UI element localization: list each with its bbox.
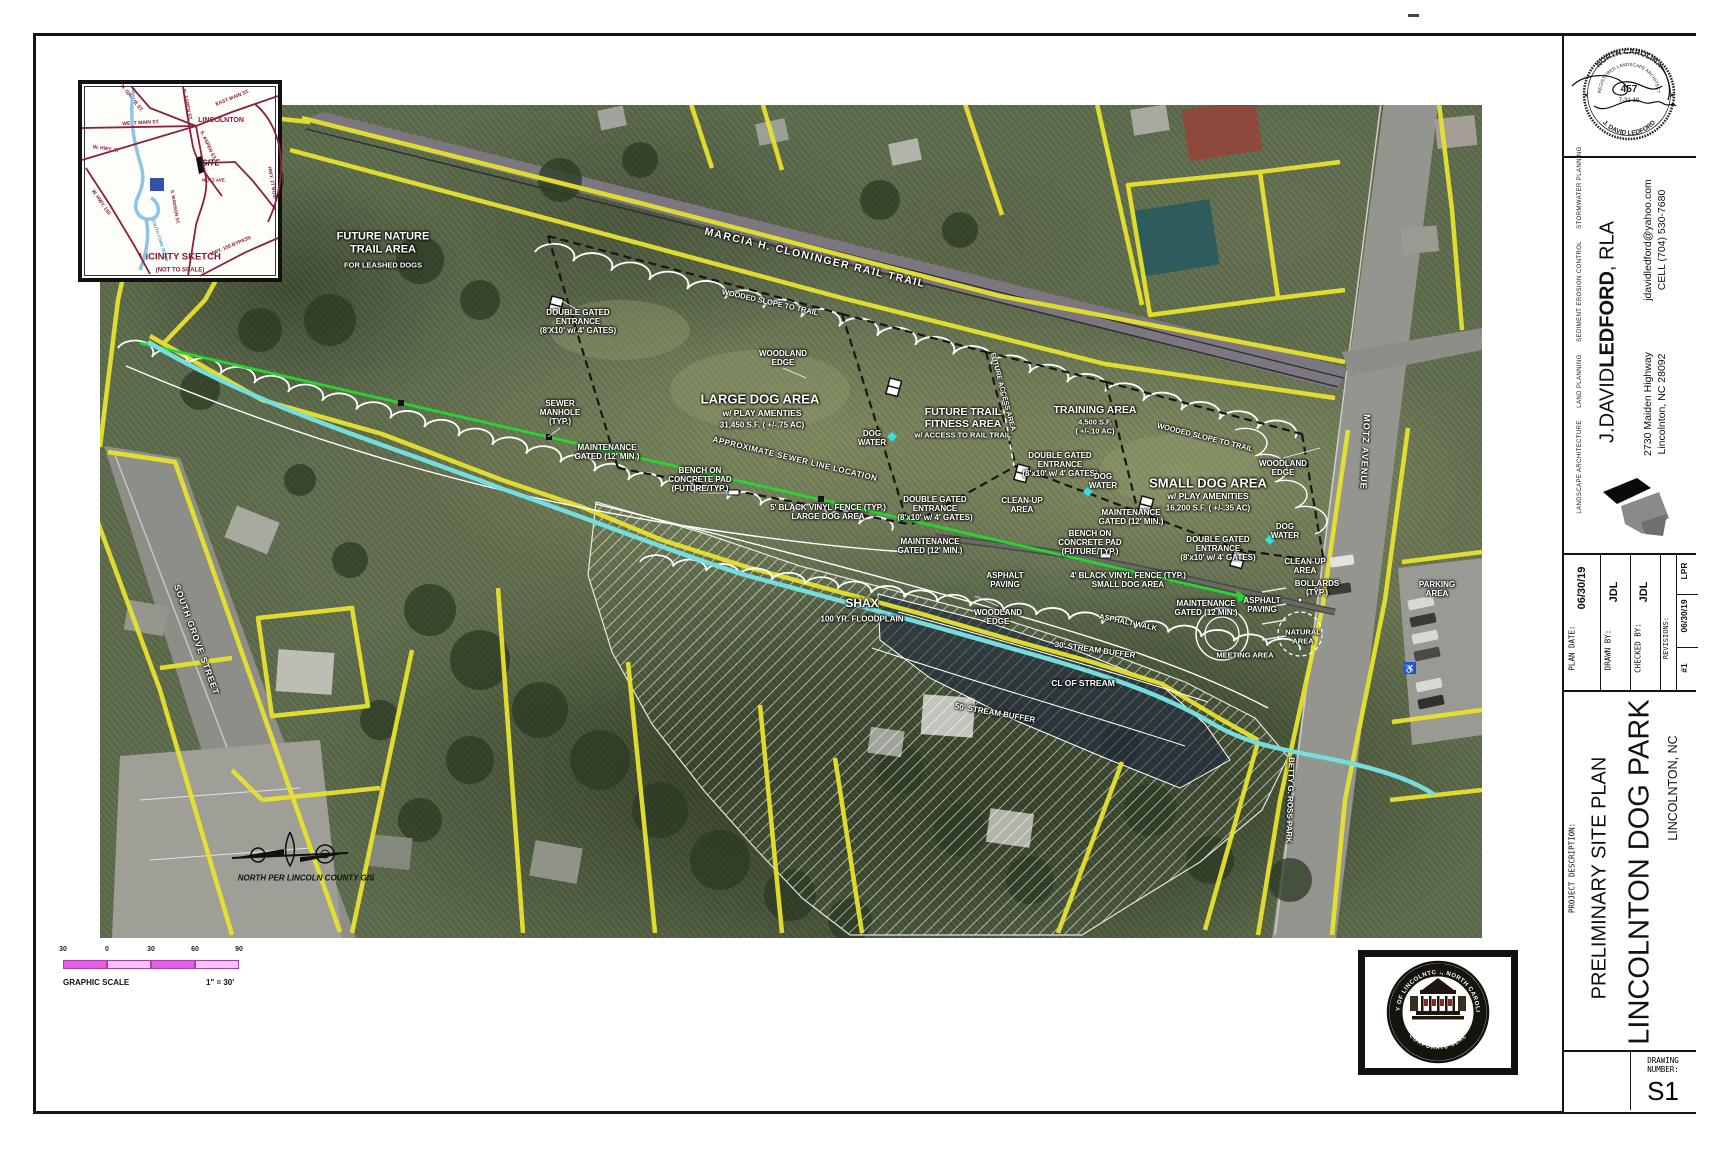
firm-box: [1564, 158, 1696, 555]
firm-cell: CELL (704) 530-7680: [1656, 190, 1668, 291]
firm-address2: Lincolnton, NC 28092: [1656, 354, 1668, 455]
drawing-number: S1: [1632, 1076, 1694, 1107]
graphic-scale: 300306090 GRAPHIC SCALE 1" = 30': [63, 946, 313, 998]
revisions-label: REVISIONS:: [1662, 617, 1670, 659]
plan-date-value: 06/30/19: [1576, 567, 1588, 610]
number-box: DRAWING NUMBER: S1: [1564, 1052, 1696, 1110]
page-mark: [1408, 14, 1419, 17]
stamp-box: NORTH CAROLINA REGISTERED LANDSCAPE ARCH…: [1564, 36, 1696, 158]
stamp-star-right: ★: [1669, 92, 1674, 99]
scale-tick: 90: [235, 946, 243, 953]
scale-tick: 0: [105, 946, 109, 953]
project-title-1: PRELIMINARY SITE PLAN: [1589, 757, 1612, 1000]
scale-tick: 30: [147, 946, 155, 953]
plan-date-label: PLAN DATE:: [1568, 625, 1577, 670]
stamp-number: 457: [1621, 84, 1638, 95]
nc-landscape-architect-stamp: NORTH CAROLINA REGISTERED LANDSCAPE ARCH…: [1564, 36, 1696, 156]
project-title-2: LINCOLNTON DOG PARK: [1624, 699, 1657, 1044]
firm-name: J.DAVIDLEDFORD, RLA: [1597, 221, 1620, 443]
firm-first: J.DAVID: [1597, 368, 1619, 443]
scale-tick: 30: [59, 946, 67, 953]
firm-services: LANDSCAPE ARCHITECTURE LAND PLANNING SED…: [1577, 146, 1583, 513]
checked-by-label: CHECKED BY:: [1634, 623, 1643, 673]
firm-last: LEDFORD: [1597, 271, 1619, 368]
scale-caption: GRAPHIC SCALE: [63, 978, 129, 987]
checked-by-value: JDL: [1638, 582, 1650, 603]
firm-suffix: , RLA: [1597, 221, 1619, 271]
drawing-sheet: ♿ FUTURE NATURE TRAIL AREAFOR LEASHED DO…: [0, 0, 1732, 1154]
drawn-by-value: JDL: [1608, 582, 1620, 603]
vicinity-sketch: [78, 80, 282, 282]
revision-num: #1: [1679, 663, 1689, 672]
revision-by: LPR: [1679, 563, 1689, 580]
firm-email: jdavidledford@yahoo.com: [1642, 179, 1654, 301]
project-description-label: PROJECT DESCRIPTION:: [1568, 823, 1577, 913]
revision-date: 06/30/19: [1679, 599, 1689, 632]
drawing-number-label: DRAWING NUMBER:: [1632, 1056, 1694, 1074]
drawn-by-label: DRAWN BY:: [1604, 630, 1613, 671]
aerial-photo: [100, 105, 1482, 938]
scale-tick: 60: [191, 946, 199, 953]
stamp-star-left: ★: [1583, 92, 1588, 99]
project-location: LINCOLNTON, NC: [1666, 735, 1680, 840]
scale-bar: [63, 960, 239, 969]
scale-ratio: 1" = 30': [206, 978, 234, 987]
firm-address1: 2730 Maiden Highway: [1642, 352, 1654, 456]
